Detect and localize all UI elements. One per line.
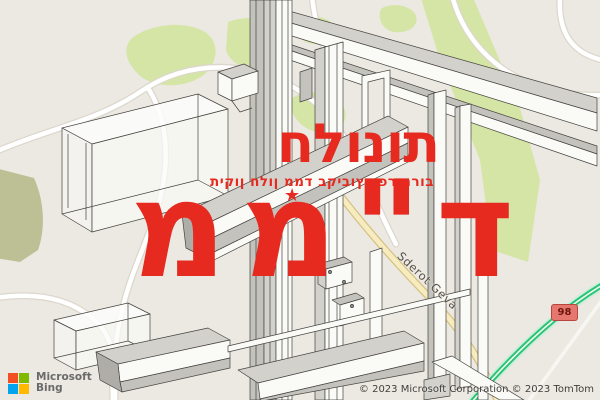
microsoft-logo-icon <box>8 373 29 394</box>
copyright-text: © 2023 Microsoft Corporation © 2023 TomT… <box>359 384 594 395</box>
ms-logo-square-blue <box>8 384 18 394</box>
ms-logo-square-red <box>8 373 18 383</box>
overlay-title: חלונות <box>277 117 439 171</box>
ms-logo-square-yellow <box>19 384 29 394</box>
bing-wordmark: Bing <box>36 383 92 394</box>
route-badge-98: 98 <box>551 304 578 321</box>
ms-logo-square-green <box>19 373 29 383</box>
overlay-main-word: ממ"ד <box>130 163 529 297</box>
star-icon[interactable]: ★ <box>284 187 300 205</box>
map-canvas[interactable]: Sderot Geva 98 תיקון חלון ממד בקיבוץ כפר… <box>0 0 600 400</box>
bing-attribution[interactable]: Microsoft Bing <box>8 372 92 394</box>
